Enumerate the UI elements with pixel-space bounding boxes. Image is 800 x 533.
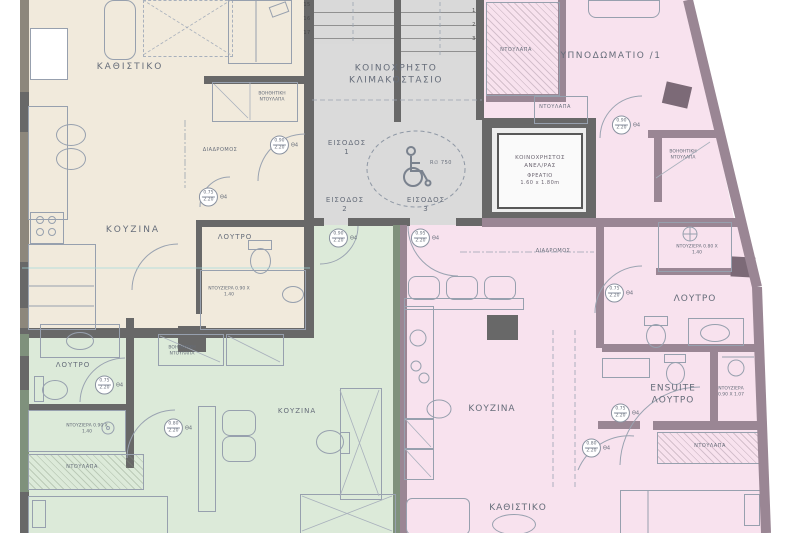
door-marker: 0.752.20 Θ4 [95, 376, 123, 395]
room-label-aux-closet: ΒΟΗΘΗΤΙΚΗ ΝΤΟΥΛΑΠΑ [161, 345, 203, 356]
room-label-shower: ΝΤΟΥΖΙΕΡΑ 0.90 Χ 1.40 [208, 286, 250, 297]
room-label-living: ΚΑΘΙΣΤΙΚΟ [97, 62, 164, 72]
room-label-kitchen: ΚΟΥΖΙΝΑ [468, 404, 515, 414]
door-type-tag: Θ4 [116, 382, 123, 388]
entrance-label-3: ΕΙΣΟΔΟΣ 3 [407, 196, 445, 214]
kitchen-counter [404, 306, 434, 420]
room-label-bath: ΛΟΥΤΡΟ [218, 233, 253, 241]
elevator-cab: ΚΟΙΝΟΧΡΗΣΤΟΣ ΑΝΕΛ/ΡΑΣ ΦΡΕΑΤΙΟ 1.60 x 1.8… [497, 133, 583, 209]
door-type-tag: Θ4 [185, 425, 192, 431]
room-label-closet: ΝΤΟΥΛΑΠΑ [66, 464, 98, 470]
door-size-circle: 0.752.20 [95, 376, 114, 395]
pillow [32, 500, 46, 528]
toilet-bowl [666, 362, 685, 385]
bed [28, 496, 168, 533]
room-label-shower: ΝΤΟΥΖΙΕΡΑ 0.90 Χ 1.07 [713, 386, 749, 397]
closet-box [28, 454, 144, 490]
door-size-circle: 0.752.20 [611, 404, 630, 423]
kitchen-sink [56, 124, 86, 146]
vanity [602, 358, 650, 378]
room-label-aux-closet: ΒΟΗΘΗΤΙΚΗ ΝΤΟΥΛΑΠΑ [251, 91, 293, 102]
stair-step-number: 17 [303, 30, 310, 36]
room-label-kitchen: ΚΟΥΖΙΝΑ [278, 407, 316, 415]
toilet-bowl [42, 380, 68, 400]
entrance-label-2: ΕΙΣΟΔΟΣ 2 [326, 196, 364, 214]
door-type-tag: Θ4 [603, 445, 610, 451]
dishwasher [404, 418, 434, 450]
elevator-label: ΑΝΕΛ/ΡΑΣ [524, 163, 556, 170]
stair-step-number: 1 [472, 8, 476, 14]
door-marker: 0.952.20 Θ4 [411, 229, 439, 248]
room-label-kitchen: ΚΟΥΖΙΝΑ [106, 225, 160, 235]
stair-flight-left [312, 0, 394, 44]
door-marker: 0.752.20 Θ4 [605, 284, 633, 303]
aux-closet-box [226, 334, 284, 366]
room-label-shower: ΝΤΟΥΖΙΕΡΑ 0.80 Χ 1.40 [676, 244, 718, 255]
toilet-tank [340, 432, 350, 454]
door-marker: 0.752.20 Θ4 [611, 404, 639, 423]
room-label-closet: ΝΤΟΥΛΑΠΑ [500, 47, 532, 53]
pillow [744, 494, 760, 526]
bath-sink [700, 324, 730, 342]
floor-plan: ΚΟΙΝΟΧΡΗΣΤΟΣ ΑΝΕΛ/ΡΑΣ ΦΡΕΑΤΙΟ 1.60 x 1.8… [0, 0, 800, 533]
bath-sink [66, 332, 94, 350]
shower-tray [200, 270, 306, 330]
door-marker: 0.902.20 Θ4 [329, 229, 357, 248]
room-label-closet: ΝΤΟΥΛΑΠΑ [539, 104, 571, 110]
wall [393, 225, 400, 533]
door-size-circle: 0.802.20 [582, 439, 601, 458]
room-label-hall: ΔΙΑΔΡΟΜΟΣ [536, 248, 571, 254]
entrance-label-1: ΕΙΣΟΔΟΣ 1 [328, 139, 366, 157]
kitchen-cabinet [28, 244, 96, 330]
wall [476, 0, 484, 120]
sofa [104, 0, 136, 60]
stair-step-number: 2 [472, 22, 476, 28]
elevator-label: ΚΟΙΝΟΧΡΗΣΤΟΣ [515, 155, 565, 162]
room-label-bath: ΛΟΥΤΡΟ [56, 361, 91, 369]
room-label-closet: ΝΤΟΥΛΑΠΑ [694, 443, 726, 449]
washing-machine [300, 494, 396, 533]
door-size-circle: 0.952.20 [411, 229, 430, 248]
foldaway-bed-projection [143, 0, 233, 57]
kitchen-counter [198, 406, 216, 512]
room-label-aux-closet: ΒΟΗΘΗΤΙΚΗ ΝΤΟΥΛΑΠΑ [662, 149, 704, 160]
door-marker: 0.902.20 Θ4 [270, 136, 298, 155]
wall [196, 220, 304, 227]
door-type-tag: Θ4 [220, 194, 227, 200]
kitchen-sink [56, 148, 86, 170]
turning-circle-label: R∅ 750 [430, 160, 452, 166]
room-label-ensuite: ENSUITE ΛΟΥΤΡΟ [650, 383, 696, 406]
door-type-tag: Θ4 [432, 235, 439, 241]
round-table [492, 514, 536, 533]
washing-machine [404, 448, 434, 480]
wall [20, 356, 29, 390]
door-type-tag: Θ4 [633, 122, 640, 128]
wall [456, 218, 482, 226]
wall-pillar [730, 256, 755, 277]
door-marker: 0.902.20 Θ4 [612, 116, 640, 135]
wall [126, 318, 134, 408]
wall [596, 226, 604, 348]
wall [394, 0, 401, 122]
bar-stool [408, 276, 440, 300]
stair-step-number: 16 [303, 16, 310, 22]
bed-headboard [588, 0, 660, 18]
room-label-hall: ΔΙΑΔΡΟΜΟΣ [203, 147, 238, 153]
room-label-bedroom1: ΥΠΝΟΔΩΜΑΤΙΟ /1 [561, 51, 662, 61]
door-size-circle: 0.902.20 [270, 136, 289, 155]
bed [620, 490, 764, 533]
elevator-shaft-size: 1.60 x 1.80m [520, 180, 559, 187]
bar-stool [222, 436, 256, 462]
door-size-circle: 0.752.20 [199, 188, 218, 207]
stair-step-number: 15 [303, 2, 310, 8]
stair-step-number: 3 [472, 36, 476, 42]
bar-stool [222, 410, 256, 436]
wall [312, 218, 324, 226]
balcony-door-panel [30, 28, 68, 80]
bar-stool [446, 276, 478, 300]
closet-box [534, 96, 588, 124]
stove [30, 212, 64, 244]
door-type-tag: Θ4 [626, 290, 633, 296]
room-label-bath: ΛΟΥΤΡΟ [674, 294, 717, 304]
wall [653, 421, 763, 430]
bar-stool [484, 276, 516, 300]
armchair [406, 498, 470, 533]
door-marker: 0.752.20 Θ4 [199, 188, 227, 207]
toilet-bowl [646, 324, 666, 348]
room-label-shower: ΝΤΟΥΖΙΕΡΑ 0.90 Χ 1.40 [66, 423, 108, 434]
door-type-tag: Θ4 [291, 142, 298, 148]
door-type-tag: Θ4 [350, 235, 357, 241]
door-marker: 0.802.20 Θ4 [582, 439, 610, 458]
door-type-tag: Θ4 [632, 410, 639, 416]
door-size-circle: 0.802.20 [164, 419, 183, 438]
door-size-circle: 0.902.20 [612, 116, 631, 135]
elevator-shaft-label: ΦΡΕΑΤΙΟ [527, 173, 553, 180]
room-label-living: ΚΑΘΙΣΤΙΚΟ [489, 503, 547, 513]
door-marker: 0.802.20 Θ4 [164, 419, 192, 438]
door-size-circle: 0.752.20 [605, 284, 624, 303]
door-size-circle: 0.902.20 [329, 229, 348, 248]
wall [654, 136, 662, 202]
stair-flight-right [398, 0, 482, 56]
wall-pillar [487, 315, 518, 340]
room-label-stairwell: ΚΟΙΝΟΧΡΗΣΤΟ ΚΛΙΜΑΚΟΣΤΑΣΙΟ [349, 63, 443, 86]
